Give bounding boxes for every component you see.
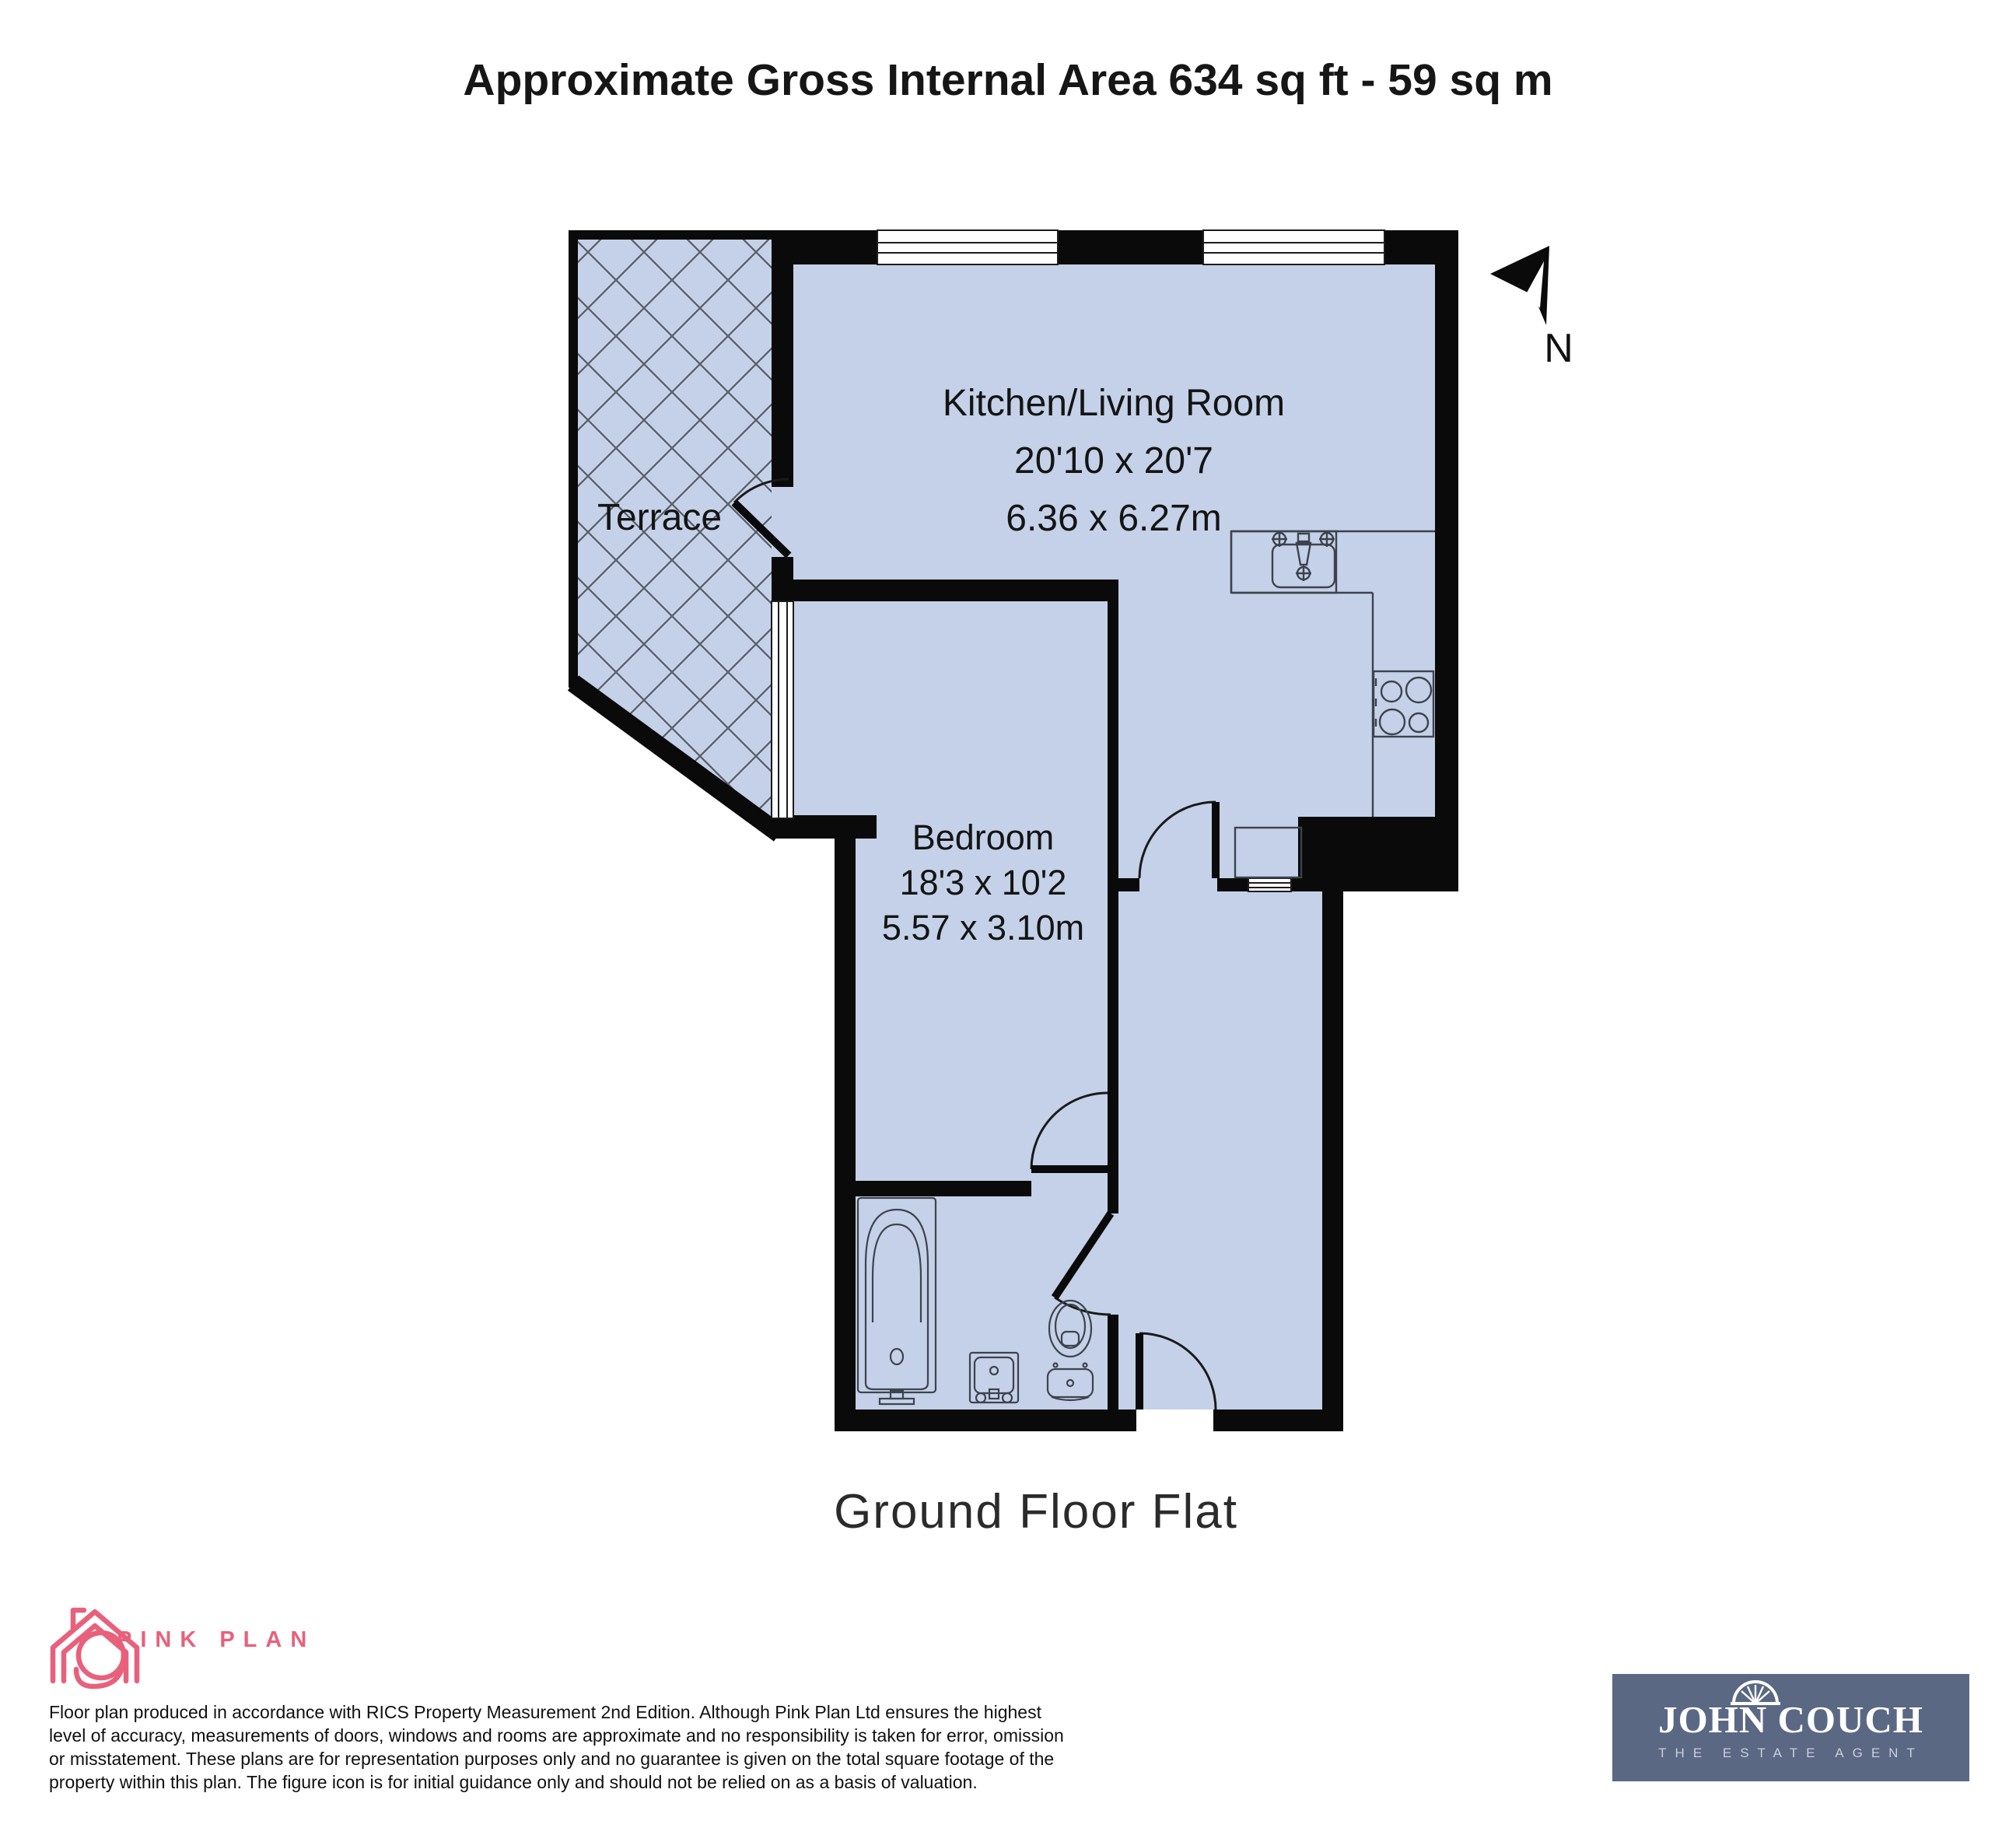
kitchen-living-room-label: Kitchen/Living Room 20'10 x 20'7 6.36 x … bbox=[943, 375, 1285, 548]
terrace-divider-wall-upper bbox=[772, 230, 793, 487]
kitchen-small-window bbox=[1248, 878, 1291, 891]
disclaimer-line: or misstatement. These plans are for rep… bbox=[49, 1747, 1064, 1770]
bathroom-doorway-floor bbox=[1108, 1213, 1118, 1315]
agent-tagline: THE ESTATE AGENT bbox=[1612, 1746, 1969, 1761]
bathroom-floor bbox=[856, 1196, 1108, 1410]
disclaimer-text: Floor plan produced in accordance with R… bbox=[49, 1700, 1064, 1794]
kitchen-bottom-wall-seg3 bbox=[1291, 878, 1298, 891]
room-name: Bedroom bbox=[882, 815, 1084, 860]
room-name: Kitchen/Living Room bbox=[943, 375, 1285, 432]
bathroom-right-wall bbox=[1108, 1315, 1118, 1410]
kitchen-corner-wall bbox=[1298, 817, 1458, 891]
north-arrow-icon bbox=[1490, 246, 1549, 325]
hall-right-wall bbox=[1322, 888, 1343, 1431]
terrace-top-wall bbox=[569, 230, 772, 240]
agent-logo: JOHN COUCH THE ESTATE AGENT bbox=[1612, 1674, 1969, 1781]
room-size-imperial: 18'3 x 10'2 bbox=[882, 860, 1084, 905]
room-size-metric: 5.57 x 3.10m bbox=[882, 905, 1084, 951]
right-wall bbox=[1435, 230, 1458, 891]
bedroom-label: Bedroom 18'3 x 10'2 5.57 x 3.10m bbox=[882, 815, 1084, 951]
bedroom-top-wall bbox=[772, 580, 1118, 601]
floor-title: Ground Floor Flat bbox=[834, 1484, 1238, 1539]
north-label: N bbox=[1544, 325, 1573, 372]
terrace-left-wall bbox=[569, 230, 578, 688]
terrace-label: Terrace bbox=[597, 496, 722, 539]
bottom-wall-seg2 bbox=[1213, 1410, 1343, 1431]
disclaimer-line: Floor plan produced in accordance with R… bbox=[49, 1700, 1064, 1724]
hall-floor bbox=[1118, 891, 1322, 1410]
bedroom-bottom-wall bbox=[856, 1181, 1031, 1196]
agent-name: JOHN COUCH bbox=[1612, 1697, 1969, 1742]
left-wall bbox=[835, 839, 856, 1431]
kitchen-window-2 bbox=[1203, 230, 1384, 264]
top-wall-seg2 bbox=[1058, 230, 1203, 264]
top-wall-seg1 bbox=[793, 230, 877, 264]
bedroom-terrace-window bbox=[772, 601, 793, 818]
bedroom-door-post bbox=[1108, 1171, 1118, 1213]
bottom-wall-seg1 bbox=[835, 1410, 1136, 1431]
bedroom-doorway-floor bbox=[1031, 1181, 1108, 1196]
disclaimer-line: level of accuracy, measurements of doors… bbox=[49, 1724, 1064, 1747]
room-size-metric: 6.36 x 6.27m bbox=[943, 490, 1285, 548]
kitchen-window-1 bbox=[877, 230, 1058, 264]
floorplan-page: Approximate Gross Internal Area 634 sq f… bbox=[0, 0, 2016, 1828]
pink-plan-brand: PINK PLAN bbox=[117, 1627, 315, 1653]
disclaimer-line: property within this plan. The figure ic… bbox=[49, 1770, 1064, 1794]
kitchen-bottom-wall-seg2 bbox=[1217, 878, 1248, 891]
bedroom-right-wall bbox=[1108, 601, 1118, 1181]
room-size-imperial: 20'10 x 20'7 bbox=[943, 432, 1285, 490]
kitchen-doorway-floor bbox=[1139, 878, 1217, 891]
